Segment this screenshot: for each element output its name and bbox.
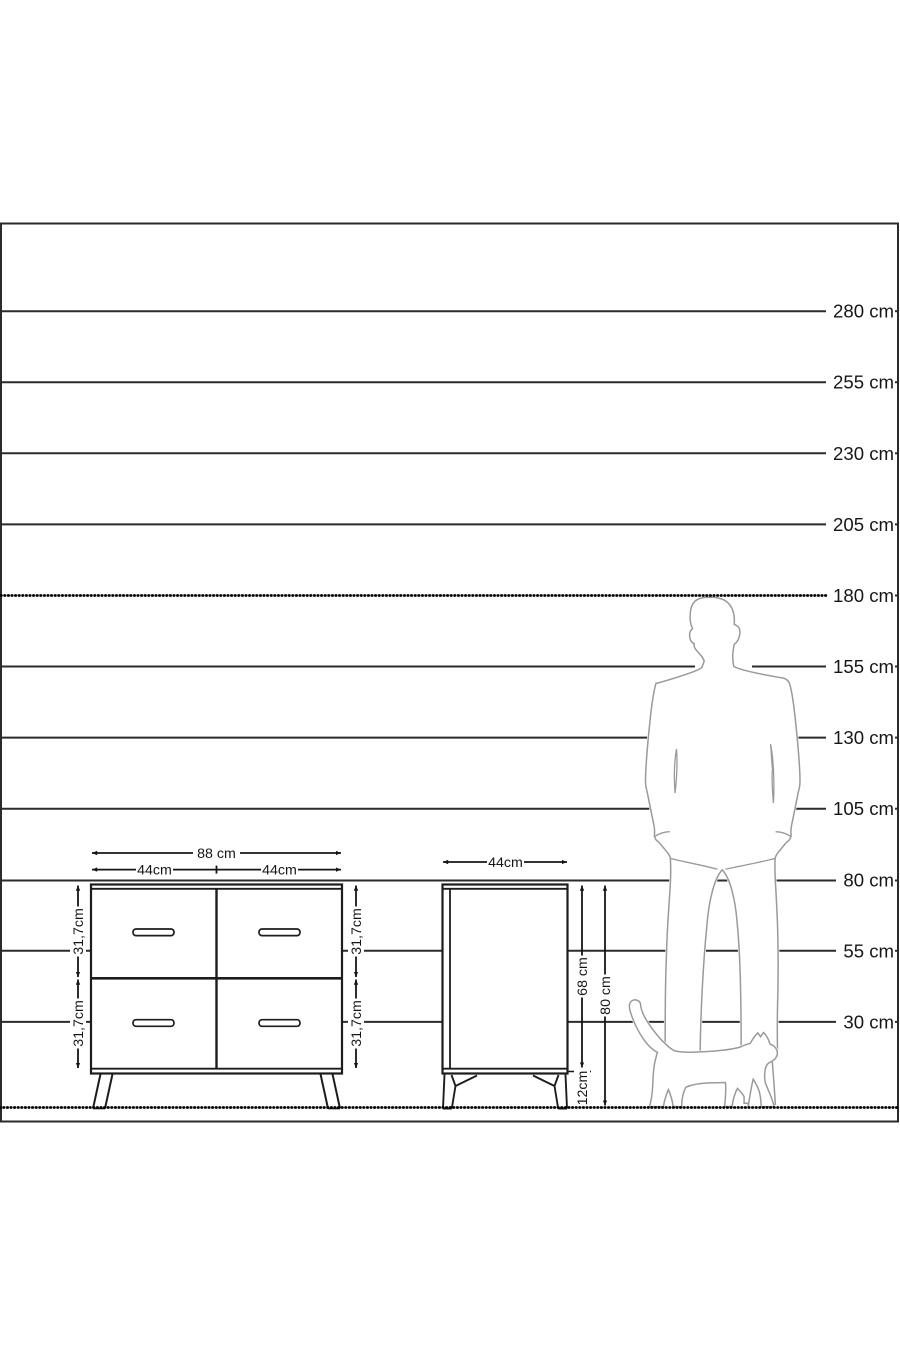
svg-text:88 cm: 88 cm — [197, 846, 236, 862]
svg-text:180 cm: 180 cm — [833, 585, 894, 606]
svg-text:230 cm: 230 cm — [833, 443, 894, 464]
svg-text:31,7cm: 31,7cm — [71, 1000, 87, 1047]
svg-text:130 cm: 130 cm — [833, 727, 894, 748]
svg-text:44cm: 44cm — [262, 863, 297, 879]
svg-text:280 cm: 280 cm — [833, 301, 894, 322]
svg-text:105 cm: 105 cm — [833, 798, 894, 819]
svg-text:44cm: 44cm — [488, 855, 523, 871]
svg-text:44cm: 44cm — [137, 863, 172, 879]
svg-text:255 cm: 255 cm — [833, 372, 894, 393]
svg-text:80 cm: 80 cm — [598, 976, 614, 1015]
svg-text:31,7cm: 31,7cm — [349, 908, 365, 955]
svg-text:80 cm: 80 cm — [843, 869, 894, 890]
svg-text:30 cm: 30 cm — [843, 1011, 894, 1032]
svg-text:155 cm: 155 cm — [833, 656, 894, 677]
svg-text:205 cm: 205 cm — [833, 514, 894, 535]
svg-text:12cm: 12cm — [575, 1071, 591, 1106]
svg-text:31,7cm: 31,7cm — [349, 1000, 365, 1047]
svg-text:68 cm: 68 cm — [575, 957, 591, 996]
svg-text:55 cm: 55 cm — [843, 940, 894, 961]
svg-text:31,7cm: 31,7cm — [71, 908, 87, 955]
